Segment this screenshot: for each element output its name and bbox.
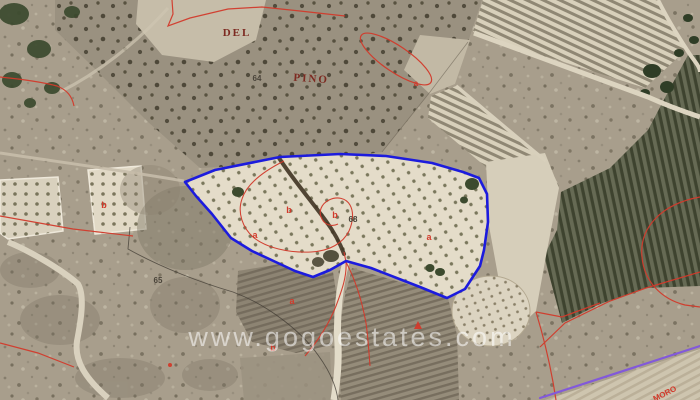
- watermark: www.gogoestates.com: [187, 322, 515, 352]
- map-label-b3: b: [101, 200, 107, 210]
- red-dot-marker: [168, 363, 172, 367]
- map-label-del: DEL: [223, 27, 252, 39]
- map-label-b2: b: [332, 210, 338, 220]
- map-label-68: 68: [349, 215, 358, 224]
- map-label-a4: a: [414, 79, 419, 88]
- map-canvas: DEL PINO 64 65 68 a a a b b b b a MORO w…: [0, 0, 700, 400]
- shrub-clump: [312, 257, 324, 267]
- orchard-left-a-trees: [0, 177, 63, 239]
- map-label-65: 65: [154, 276, 163, 285]
- shrub-clump: [323, 250, 339, 262]
- map-label-64: 64: [253, 74, 262, 83]
- map-label-b1: b: [286, 205, 292, 215]
- bottom-field: [240, 352, 332, 400]
- aerial-parcel-map: DEL PINO 64 65 68 a a a b b b b a MORO w…: [0, 0, 700, 400]
- map-label-pino: PINO: [293, 72, 329, 86]
